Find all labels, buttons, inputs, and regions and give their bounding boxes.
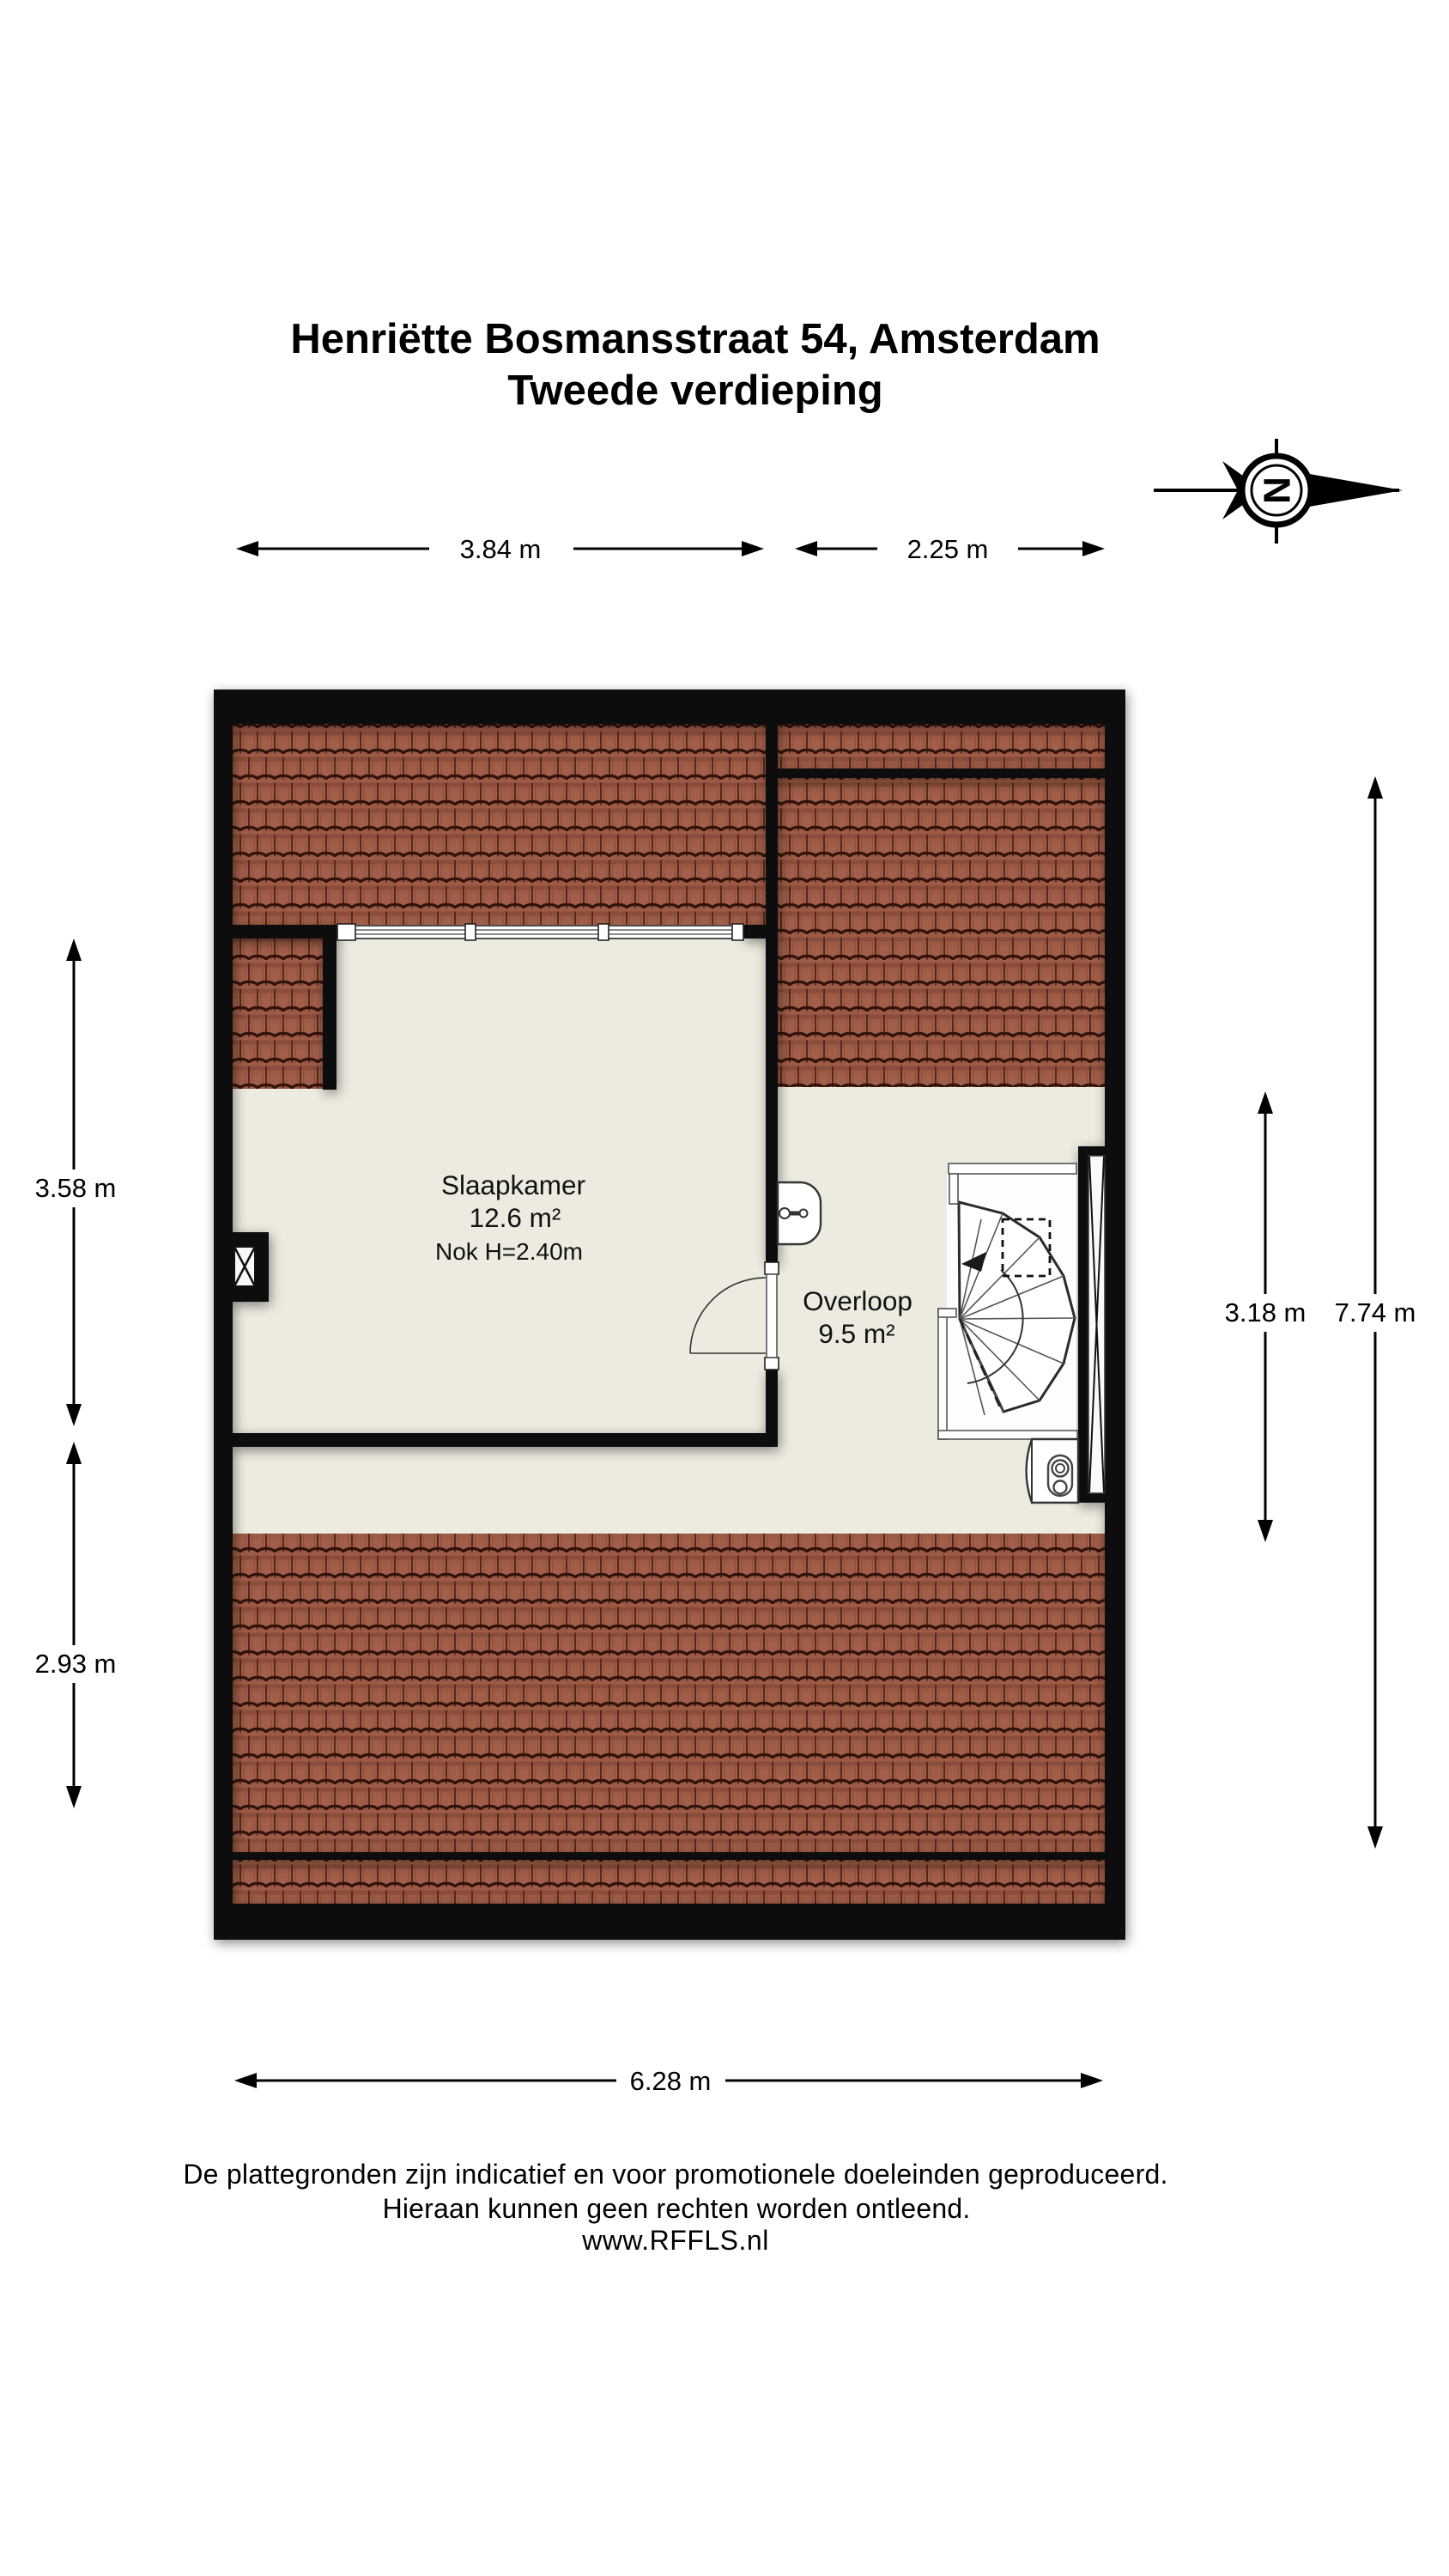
svg-text:2.25 m: 2.25 m [907, 534, 989, 564]
svg-text:www.RFFLS.nl: www.RFFLS.nl [581, 2225, 769, 2256]
svg-text:Henriëtte Bosmansstraat 54, Am: Henriëtte Bosmansstraat 54, Amsterdam [290, 316, 1100, 362]
svg-text:De plattegronden zijn indicati: De plattegronden zijn indicatief en voor… [183, 2159, 1167, 2190]
svg-text:2.93 m: 2.93 m [35, 1649, 117, 1679]
svg-text:6.28 m: 6.28 m [630, 2066, 712, 2096]
svg-text:Hieraan kunnen geen rechten wo: Hieraan kunnen geen rechten worden ontle… [383, 2193, 971, 2224]
svg-text:Tweede verdieping: Tweede verdieping [507, 368, 882, 414]
svg-text:3.58 m: 3.58 m [35, 1173, 117, 1203]
svg-text:Slaapkamer: Slaapkamer [441, 1170, 585, 1200]
svg-text:3.18 m: 3.18 m [1225, 1297, 1307, 1327]
svg-text:7.74 m: 7.74 m [1335, 1297, 1416, 1327]
svg-text:9.5 m²: 9.5 m² [818, 1318, 894, 1349]
svg-text:N: N [1256, 477, 1298, 504]
svg-text:3.84 m: 3.84 m [460, 534, 542, 564]
svg-text:Overloop: Overloop [803, 1285, 912, 1316]
svg-text:12.6 m²: 12.6 m² [470, 1202, 561, 1233]
svg-text:Nok H=2.40m: Nok H=2.40m [435, 1238, 583, 1265]
